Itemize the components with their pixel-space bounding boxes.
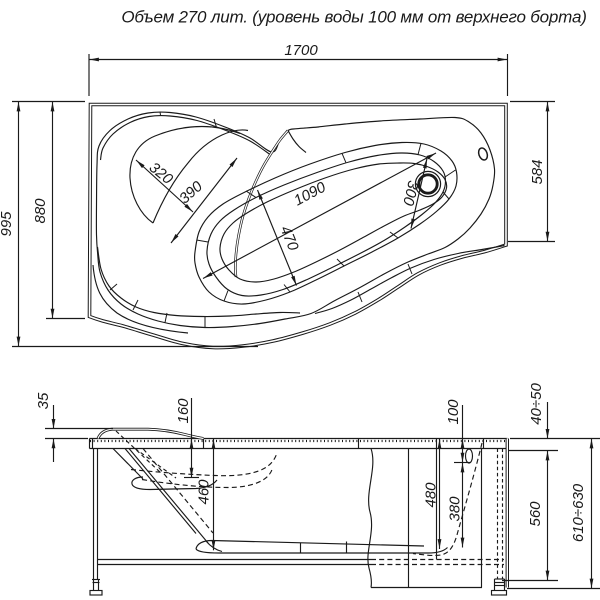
svg-text:470: 470 (277, 224, 302, 254)
svg-text:40÷50: 40÷50 (528, 383, 545, 425)
svg-text:880: 880 (32, 198, 49, 224)
svg-text:460: 460 (196, 479, 213, 505)
svg-text:1700: 1700 (284, 42, 318, 59)
svg-text:160: 160 (175, 398, 192, 424)
svg-text:35: 35 (35, 392, 52, 409)
svg-text:610÷630: 610÷630 (570, 483, 587, 542)
svg-text:480: 480 (423, 482, 440, 508)
svg-text:100: 100 (445, 399, 462, 425)
svg-text:Объем 270 лит. (уровень воды 1: Объем 270 лит. (уровень воды 100 мм от в… (121, 8, 586, 27)
svg-text:380: 380 (447, 496, 464, 522)
svg-text:300: 300 (399, 179, 421, 208)
svg-text:995: 995 (0, 211, 15, 237)
svg-text:560: 560 (527, 501, 544, 527)
svg-text:584: 584 (529, 159, 546, 184)
svg-text:320: 320 (146, 159, 177, 188)
